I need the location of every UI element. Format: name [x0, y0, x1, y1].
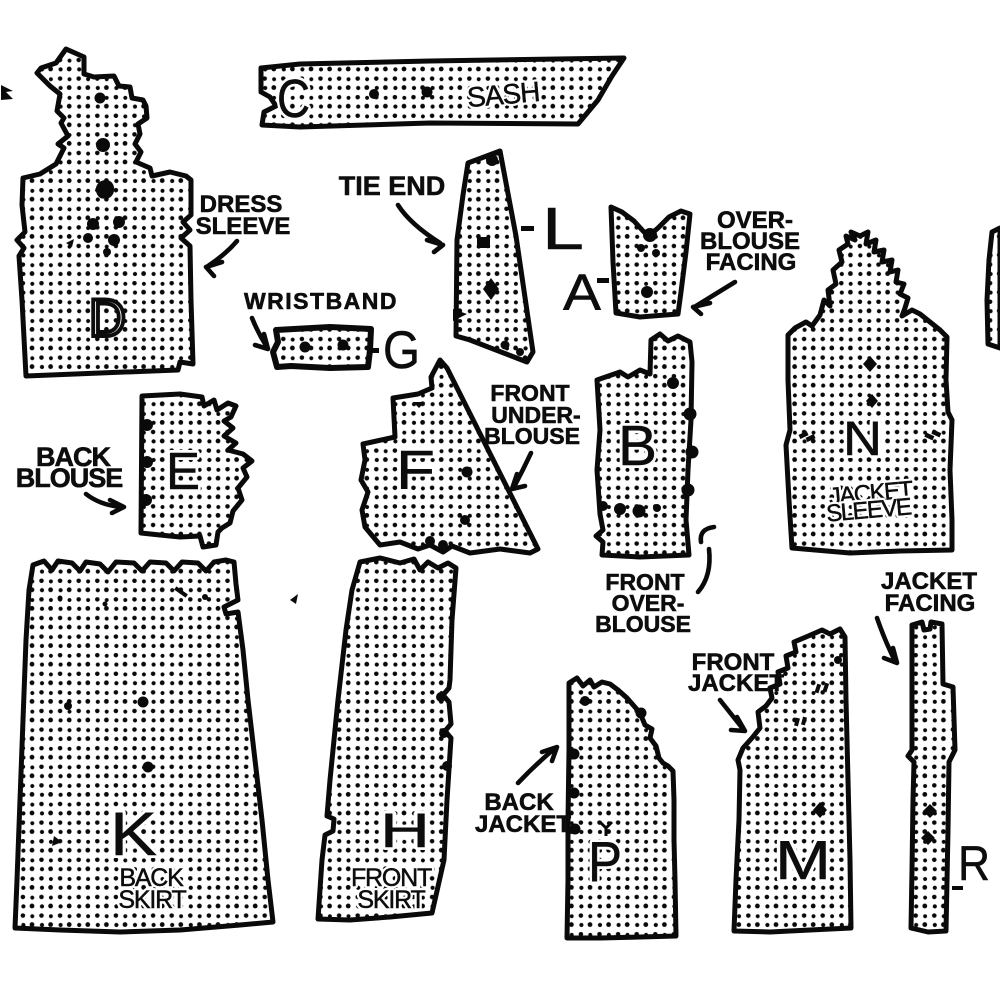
svg-text:K: K	[110, 800, 157, 868]
svg-text:R: R	[958, 837, 990, 891]
svg-text:FACING: FACING	[706, 249, 797, 276]
svg-text:BLOUSE: BLOUSE	[484, 423, 580, 449]
svg-text:E: E	[166, 443, 200, 501]
svg-text:B: B	[618, 414, 657, 478]
svg-text:BLOUSE: BLOUSE	[16, 463, 123, 493]
svg-text:TIE END: TIE END	[339, 171, 446, 201]
svg-text:N: N	[843, 413, 882, 466]
svg-text:F: F	[396, 439, 435, 501]
svg-text:L: L	[542, 196, 584, 262]
svg-text:JACKET: JACKET	[475, 811, 571, 838]
svg-text:G: G	[383, 321, 420, 380]
svg-text:C: C	[277, 69, 310, 129]
svg-text:JACKET: JACKET	[688, 670, 784, 697]
svg-text:FACING: FACING	[885, 590, 976, 617]
svg-text:M: M	[775, 829, 831, 891]
svg-text:SASH: SASH	[466, 76, 541, 113]
svg-text:H: H	[380, 805, 430, 858]
svg-text:BLOUSE: BLOUSE	[595, 611, 691, 637]
svg-text:SKIRT: SKIRT	[118, 886, 186, 914]
svg-text:A: A	[563, 264, 601, 321]
svg-text:SKIRT: SKIRT	[357, 886, 425, 914]
svg-text:WRISTBAND: WRISTBAND	[244, 288, 398, 314]
svg-text:D: D	[89, 289, 126, 348]
svg-text:P: P	[588, 830, 622, 894]
svg-text:SLEEVE: SLEEVE	[196, 213, 291, 240]
